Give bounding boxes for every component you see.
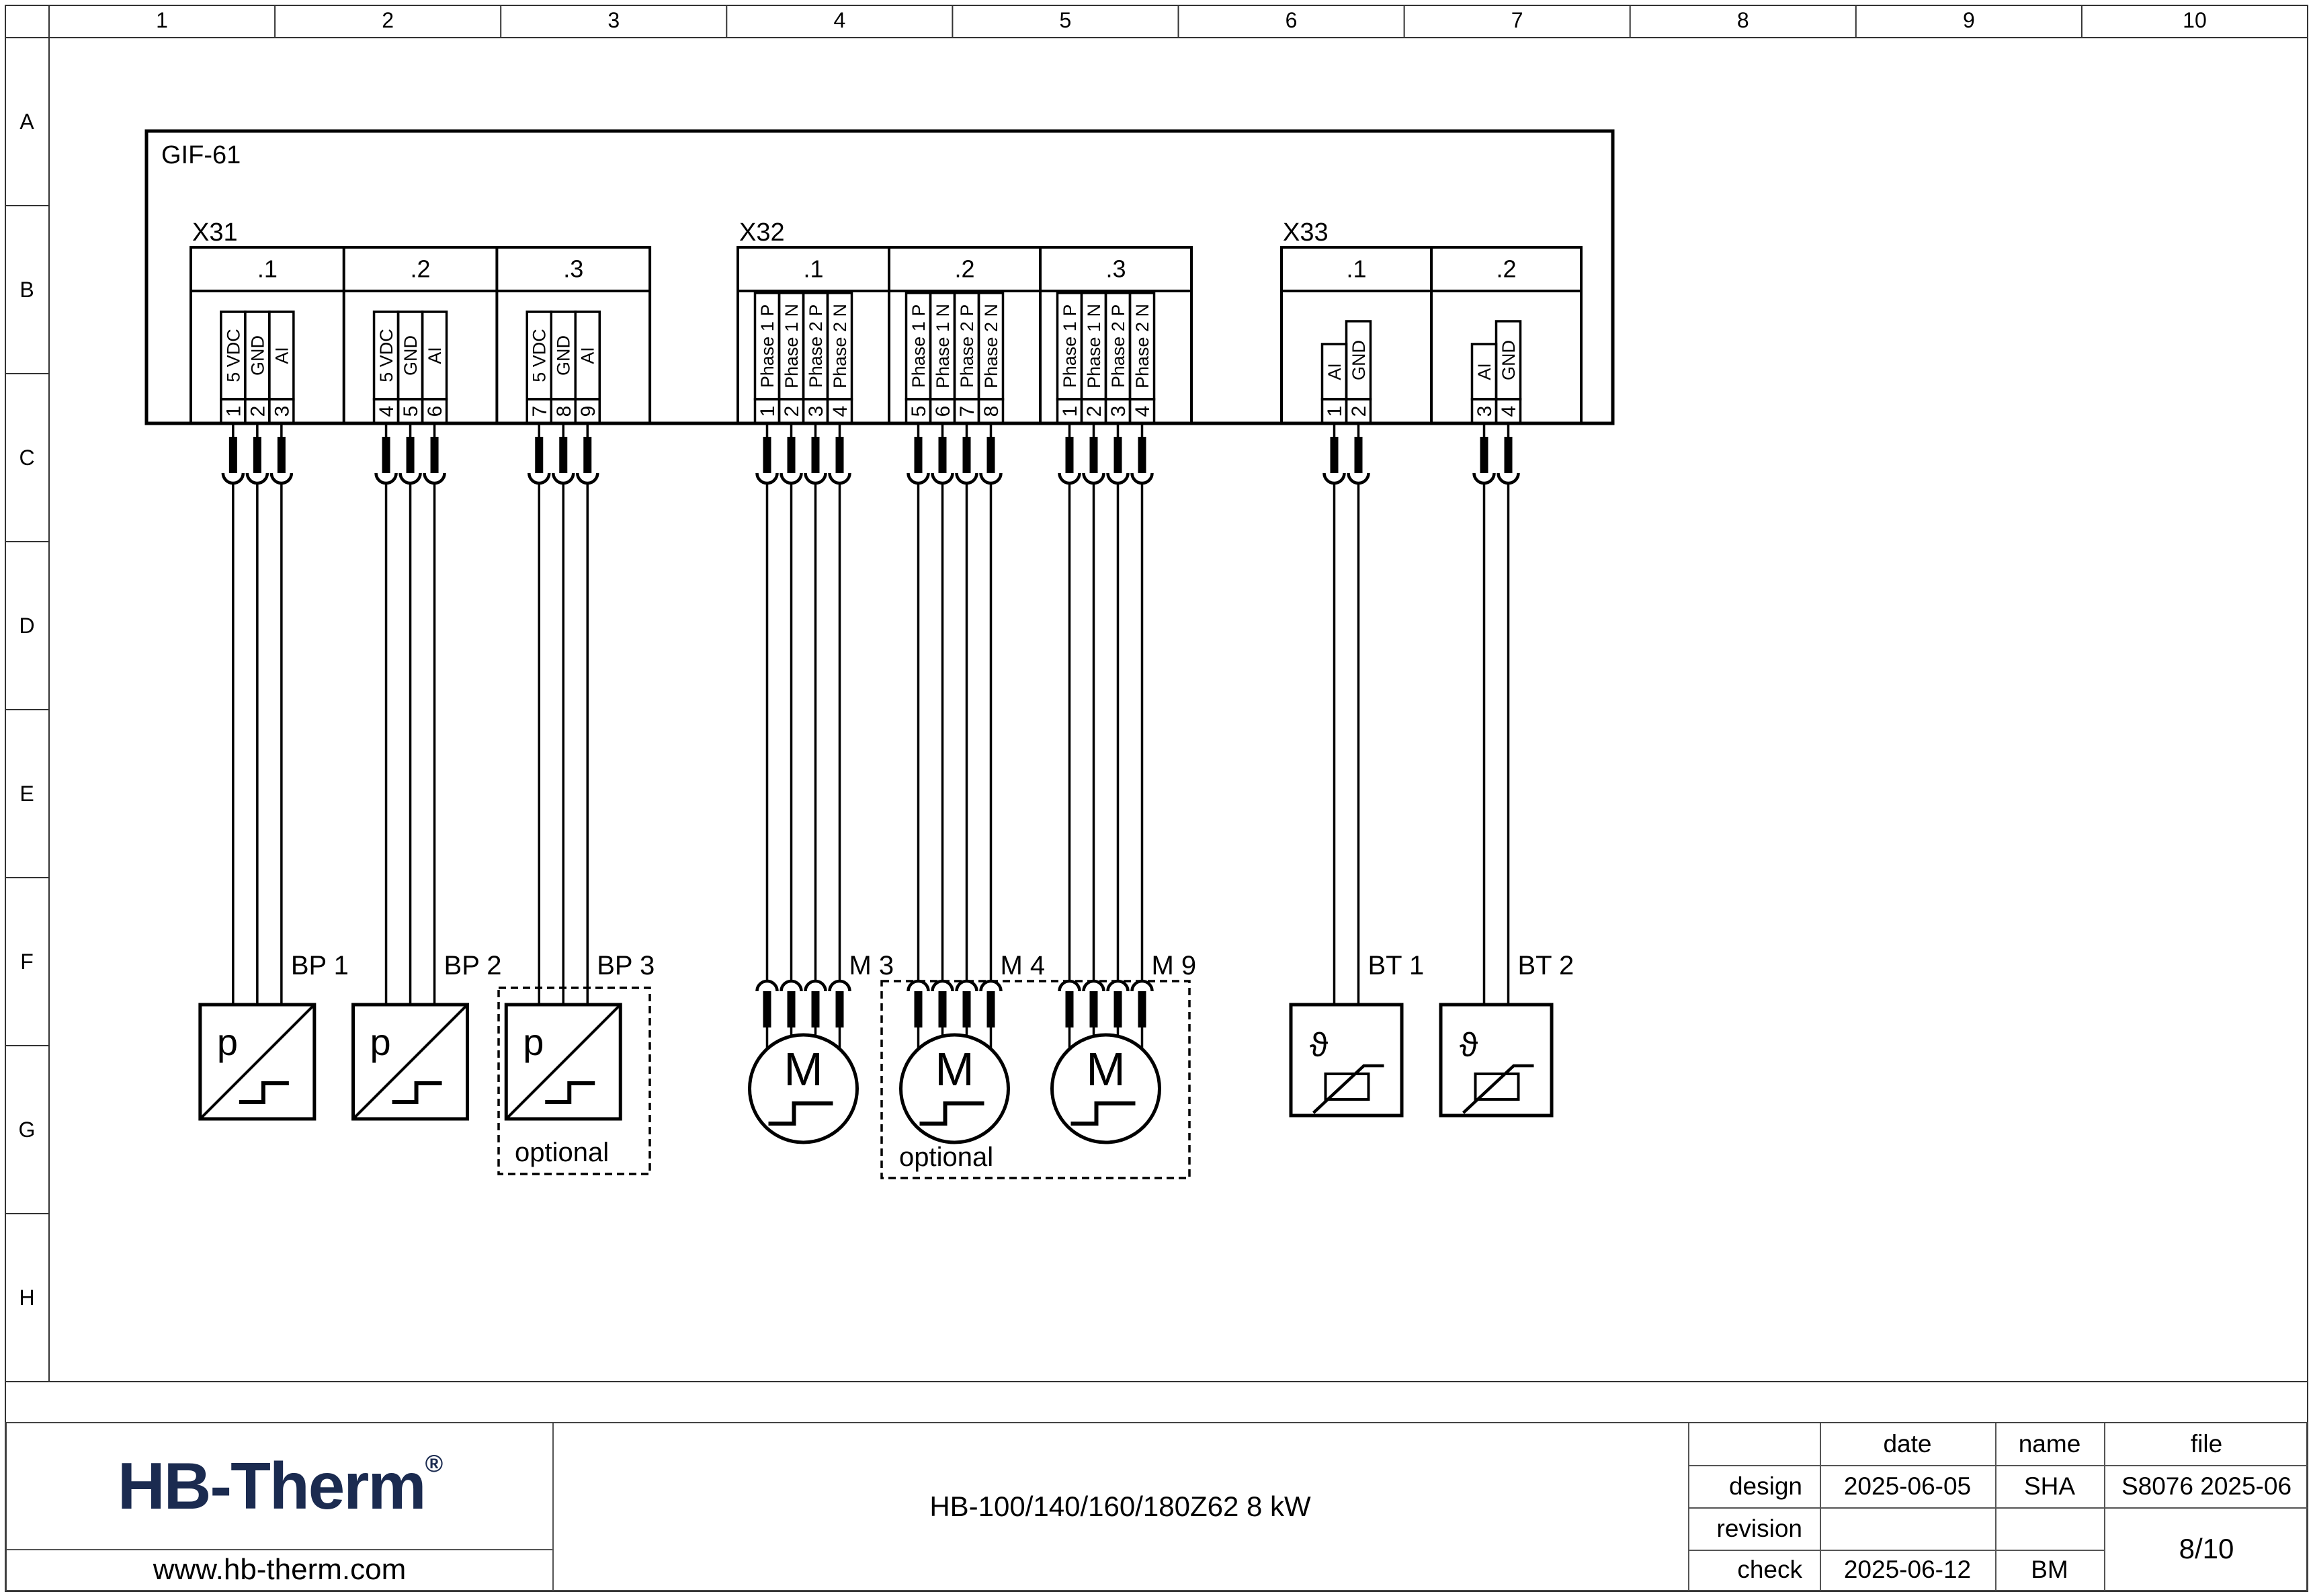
optional-label: optional xyxy=(515,1138,609,1167)
pin-number: 8 xyxy=(553,406,575,417)
plug-socket xyxy=(223,473,243,483)
pin-number: 1 xyxy=(222,406,245,417)
plug-pin xyxy=(382,437,390,473)
pin-signal-label: GND xyxy=(554,335,574,376)
plug-pin xyxy=(431,437,439,473)
plug-socket xyxy=(830,473,850,483)
component-label-bp-3: BP 3 xyxy=(597,951,655,980)
design-file: S8076 2025-06 xyxy=(2104,1465,2309,1507)
plug-socket xyxy=(425,473,445,483)
pin-number: 5 xyxy=(908,406,930,417)
pin-number: 2 xyxy=(781,406,803,417)
pin-signal-label: GND xyxy=(401,335,421,376)
plug-pin xyxy=(763,991,771,1027)
plug-socket xyxy=(1108,473,1128,483)
pin-signal-label: AI xyxy=(1474,363,1495,380)
logo-text: HB-Therm xyxy=(118,1449,425,1523)
plug-socket xyxy=(247,473,267,483)
plug-socket xyxy=(806,473,826,483)
plug-pin xyxy=(987,991,995,1027)
plug-pin xyxy=(535,437,543,473)
pin-number: 6 xyxy=(424,406,446,417)
component-label-m-9: M 9 xyxy=(1152,951,1197,980)
pin-number: 1 xyxy=(1324,406,1346,417)
company-website: www.hb-therm.com xyxy=(7,1549,552,1590)
component-label-bt-2: BT 2 xyxy=(1518,951,1574,980)
pin-number: 3 xyxy=(1107,406,1130,417)
plug-pin xyxy=(1114,991,1122,1027)
connector-cell-label: .3 xyxy=(1105,255,1126,283)
plug-pin xyxy=(812,991,820,1027)
pin-number: 8 xyxy=(980,406,1003,417)
pin-signal-label: GND xyxy=(1349,340,1369,380)
component-label-bt-1: BT 1 xyxy=(1368,951,1425,980)
column-label: 6 xyxy=(1286,8,1298,32)
pin-number: 3 xyxy=(805,406,827,417)
registered-mark: ® xyxy=(425,1450,442,1477)
pin-number: 4 xyxy=(1132,406,1154,417)
plug-socket xyxy=(782,981,802,991)
pin-number: 7 xyxy=(956,406,978,417)
design-name: SHA xyxy=(1995,1465,2104,1507)
pin-signal-label: Phase 1 N xyxy=(782,304,802,388)
pin-signal-label: AI xyxy=(271,347,292,364)
plug-pin xyxy=(987,437,995,473)
plug-socket xyxy=(757,473,777,483)
pin-number: 2 xyxy=(1348,406,1370,417)
column-label: 8 xyxy=(1737,8,1749,32)
plug-socket xyxy=(830,981,850,991)
plug-pin xyxy=(788,437,796,473)
plug-socket xyxy=(757,981,777,991)
plug-socket xyxy=(1060,981,1080,991)
plug-socket xyxy=(577,473,597,483)
pin-number: 3 xyxy=(271,406,293,417)
plug-pin xyxy=(253,437,261,473)
row-label: D xyxy=(19,614,34,638)
plug-pin xyxy=(1090,991,1098,1027)
pin-number: 7 xyxy=(529,406,551,417)
sheet-frame xyxy=(5,5,2308,1591)
plug-pin xyxy=(1331,437,1339,473)
pin-signal-label: 5 VDC xyxy=(376,329,396,382)
plug-socket xyxy=(1108,981,1128,991)
column-label: 7 xyxy=(1511,8,1523,32)
connector-cell-label: .2 xyxy=(1496,255,1516,283)
row-label: E xyxy=(19,782,34,806)
row-label: B xyxy=(19,278,34,302)
plug-socket xyxy=(1324,473,1345,483)
motor-symbol: M xyxy=(1086,1043,1125,1095)
optional-label: optional xyxy=(899,1142,993,1172)
column-label: 10 xyxy=(2183,8,2207,32)
pin-signal-label: AI xyxy=(1324,363,1345,380)
pin-signal-label: Phase 1 N xyxy=(933,304,953,388)
pin-signal-label: AI xyxy=(425,347,445,364)
plug-pin xyxy=(836,991,844,1027)
plug-socket xyxy=(957,981,977,991)
connector-cell-label: .2 xyxy=(954,255,974,283)
pin-signal-label: 5 VDC xyxy=(530,329,550,382)
plug-pin xyxy=(939,437,947,473)
connector-cell-label: .1 xyxy=(257,255,278,283)
plug-socket xyxy=(553,473,573,483)
col-header-name: name xyxy=(1995,1423,2104,1465)
plug-pin xyxy=(278,437,286,473)
motor-symbol: M xyxy=(784,1043,823,1095)
plug-socket xyxy=(909,981,929,991)
plug-socket xyxy=(806,981,826,991)
plug-socket xyxy=(271,473,292,483)
drawing-title: HB-100/140/160/180Z62 8 kW xyxy=(552,1423,1688,1590)
row-label: C xyxy=(19,446,34,470)
company-logo: HB-Therm® xyxy=(7,1423,552,1549)
pin-signal-label: Phase 1 P xyxy=(757,304,777,388)
schematic-sheet: 12345678910ABCDEFGHGIF-61X31.15 VDC1GND2… xyxy=(0,0,2313,1596)
pin-signal-label: Phase 1 P xyxy=(1060,304,1080,388)
pin-signal-label: Phase 2 N xyxy=(830,304,850,388)
plug-pin xyxy=(915,437,923,473)
plug-socket xyxy=(529,473,549,483)
pin-signal-label: Phase 2 P xyxy=(806,304,826,388)
plug-socket xyxy=(981,473,1001,483)
pin-signal-label: GND xyxy=(247,335,267,376)
component-label-bp-2: BP 2 xyxy=(444,951,502,980)
plug-pin xyxy=(559,437,567,473)
plug-pin xyxy=(939,991,947,1027)
plug-socket xyxy=(933,473,953,483)
wiring-diagram: 12345678910ABCDEFGHGIF-61X31.15 VDC1GND2… xyxy=(0,0,2313,1596)
plug-pin xyxy=(1090,437,1098,473)
pin-signal-label: Phase 2 P xyxy=(1108,304,1128,388)
plug-pin xyxy=(963,437,971,473)
pin-number: 2 xyxy=(1083,406,1105,417)
row-label: F xyxy=(20,950,34,974)
page-number: 8/10 xyxy=(2104,1507,2309,1590)
row-label-check: check xyxy=(1688,1550,1802,1590)
device-label: GIF-61 xyxy=(161,141,241,169)
pin-number: 1 xyxy=(1059,406,1081,417)
plug-pin xyxy=(1480,437,1488,473)
plug-socket xyxy=(1474,473,1495,483)
plug-socket xyxy=(1132,981,1152,991)
connector-cell-label: .1 xyxy=(1346,255,1366,283)
pin-signal-label: Phase 2 N xyxy=(981,304,1001,388)
connector-name-x32: X32 xyxy=(739,218,785,247)
plug-socket xyxy=(1132,473,1152,483)
column-label: 9 xyxy=(1963,8,1975,32)
connector-cell-label: .1 xyxy=(803,255,823,283)
plug-pin xyxy=(836,437,844,473)
row-label: G xyxy=(19,1118,36,1142)
plug-socket xyxy=(1349,473,1369,483)
row-label-revision: revision xyxy=(1688,1507,1802,1550)
plug-socket xyxy=(981,981,1001,991)
check-name: BM xyxy=(1995,1550,2104,1590)
connector-cell-label: .2 xyxy=(411,255,431,283)
row-label: A xyxy=(19,110,34,134)
pin-signal-label: Phase 1 P xyxy=(909,304,929,388)
plug-pin xyxy=(1066,991,1074,1027)
connector-cell-label: .3 xyxy=(563,255,583,283)
pin-number: 5 xyxy=(400,406,422,417)
pin-number: 4 xyxy=(376,406,398,417)
column-label: 5 xyxy=(1060,8,1072,32)
plug-pin xyxy=(229,437,237,473)
pin-number: 3 xyxy=(1474,406,1496,417)
plug-socket xyxy=(909,473,929,483)
plug-socket xyxy=(1499,473,1519,483)
pressure-symbol: p xyxy=(370,1021,391,1063)
pin-number: 9 xyxy=(577,406,599,417)
connector-name-x33: X33 xyxy=(1283,218,1329,247)
plug-socket xyxy=(933,981,953,991)
check-date: 2025-06-12 xyxy=(1820,1550,1995,1590)
plug-pin xyxy=(812,437,820,473)
plug-socket xyxy=(1084,981,1104,991)
pin-signal-label: Phase 2 P xyxy=(957,304,977,388)
plug-socket xyxy=(957,473,977,483)
column-label: 4 xyxy=(833,8,845,32)
plug-pin xyxy=(1355,437,1363,473)
pin-number: 1 xyxy=(757,406,779,417)
plug-socket xyxy=(1060,473,1080,483)
column-label: 3 xyxy=(607,8,620,32)
plug-pin xyxy=(963,991,971,1027)
row-label: H xyxy=(19,1286,34,1310)
device-box-gif-61 xyxy=(146,131,1613,423)
pin-signal-label: GND xyxy=(1499,340,1519,380)
plug-socket xyxy=(401,473,421,483)
pin-number: 6 xyxy=(932,406,954,417)
pin-number: 2 xyxy=(247,406,269,417)
plug-pin xyxy=(1138,991,1146,1027)
plug-pin xyxy=(788,991,796,1027)
pressure-symbol: p xyxy=(217,1021,238,1063)
column-label: 1 xyxy=(156,8,168,32)
motor-symbol: M xyxy=(935,1043,974,1095)
plug-pin xyxy=(407,437,415,473)
plug-pin xyxy=(763,437,771,473)
component-label-m-3: M 3 xyxy=(849,951,894,980)
plug-pin xyxy=(1138,437,1146,473)
plug-pin xyxy=(1066,437,1074,473)
pin-number: 4 xyxy=(1498,406,1520,417)
pin-signal-label: Phase 1 N xyxy=(1084,304,1104,388)
col-header-date: date xyxy=(1820,1423,1995,1465)
pressure-symbol: p xyxy=(523,1021,544,1063)
plug-pin xyxy=(915,991,923,1027)
plug-pin xyxy=(1505,437,1513,473)
column-label: 2 xyxy=(382,8,394,32)
plug-pin xyxy=(583,437,591,473)
connector-name-x31: X31 xyxy=(192,218,238,247)
component-label-m-4: M 4 xyxy=(1001,951,1046,980)
component-label-bp-1: BP 1 xyxy=(291,951,349,980)
row-label-design: design xyxy=(1688,1465,1802,1507)
pin-signal-label: 5 VDC xyxy=(223,329,243,382)
col-header-file: file xyxy=(2104,1423,2309,1465)
plug-socket xyxy=(376,473,396,483)
pin-signal-label: Phase 2 N xyxy=(1132,304,1152,388)
theta-symbol: ϑ xyxy=(1310,1026,1328,1064)
plug-socket xyxy=(782,473,802,483)
pin-number: 4 xyxy=(829,406,851,417)
plug-socket xyxy=(1084,473,1104,483)
design-date: 2025-06-05 xyxy=(1820,1465,1995,1507)
plug-pin xyxy=(1114,437,1122,473)
pin-signal-label: AI xyxy=(578,347,598,364)
title-block: HB-Therm® www.hb-therm.com HB-100/140/16… xyxy=(5,1422,2308,1591)
theta-symbol: ϑ xyxy=(1460,1026,1478,1064)
